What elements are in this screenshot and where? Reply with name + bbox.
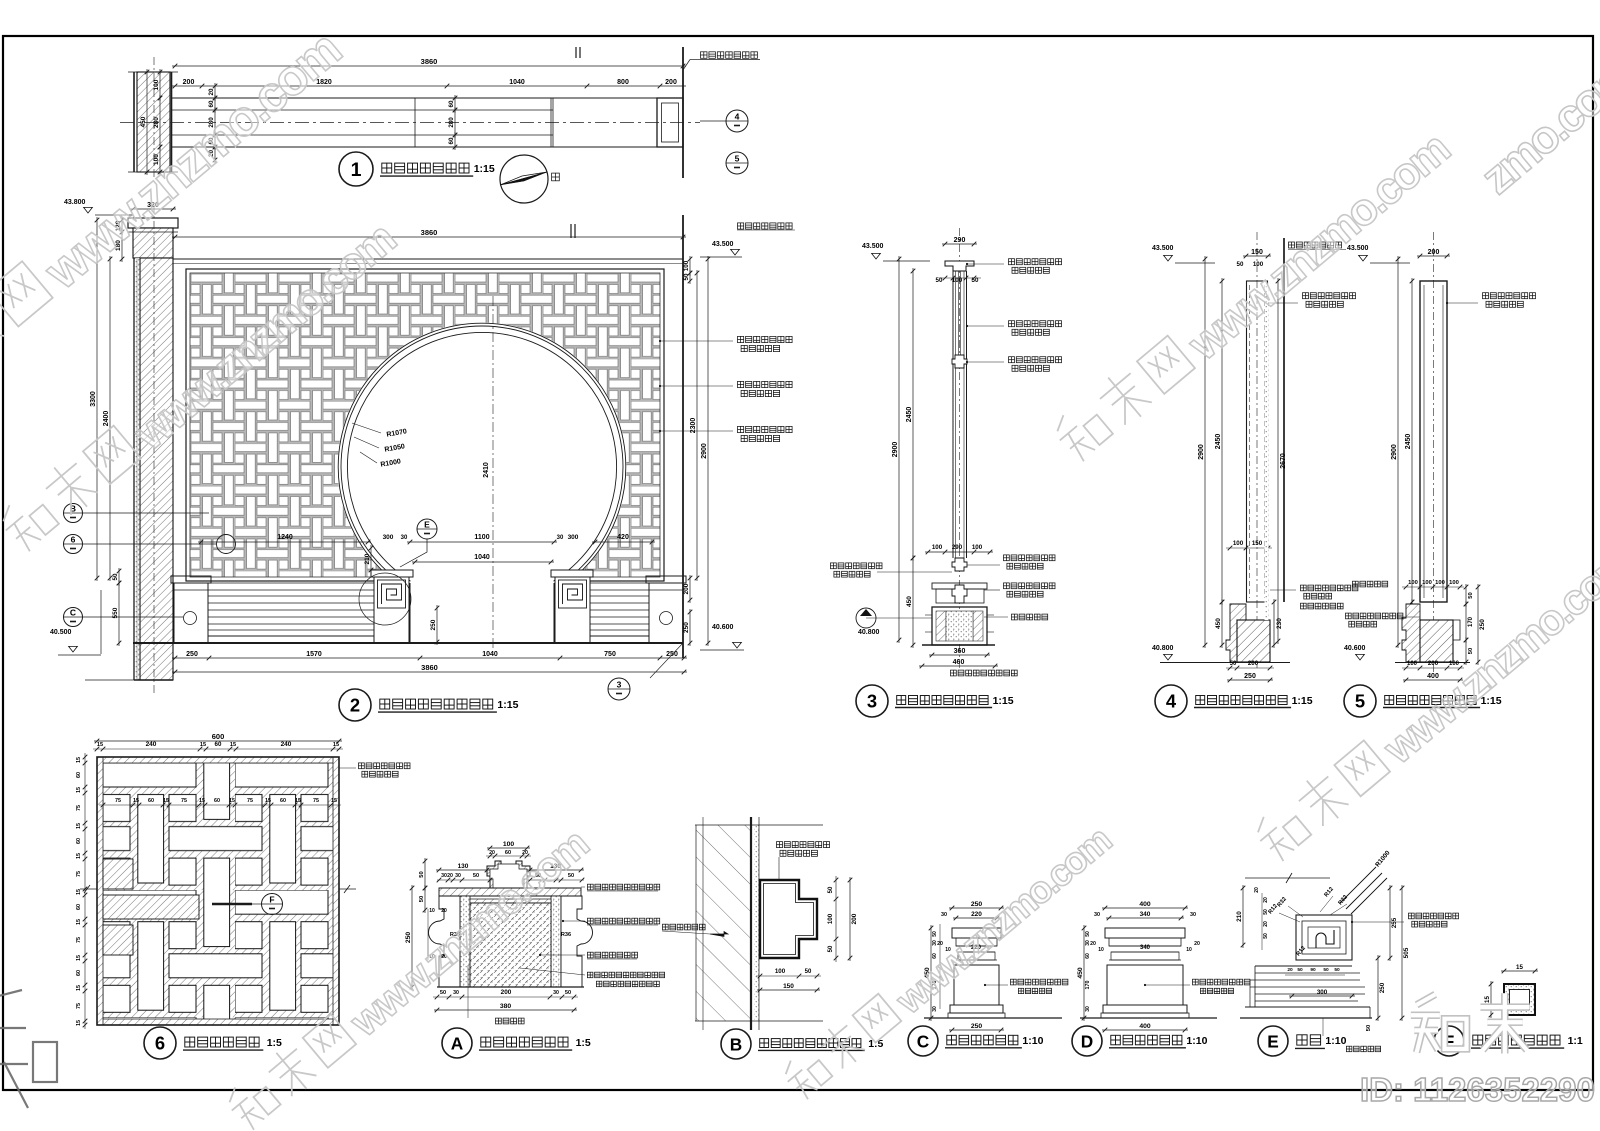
svg-text:20: 20 <box>441 908 447 914</box>
svg-text:3: 3 <box>617 680 622 690</box>
svg-text:240: 240 <box>281 741 292 748</box>
svg-text:20: 20 <box>1263 897 1269 903</box>
svg-text:50: 50 <box>828 886 834 893</box>
svg-text:60: 60 <box>448 137 455 144</box>
svg-text:F: F <box>269 895 274 905</box>
svg-text:750: 750 <box>604 651 616 658</box>
svg-text:170: 170 <box>1468 616 1474 627</box>
svg-text:200: 200 <box>501 989 512 996</box>
svg-text:20: 20 <box>447 873 453 879</box>
svg-text:E: E <box>424 520 430 530</box>
svg-text:300: 300 <box>568 534 579 541</box>
svg-text:60: 60 <box>505 850 511 856</box>
svg-text:100: 100 <box>503 841 515 848</box>
svg-text:3300: 3300 <box>90 391 97 407</box>
svg-text:15: 15 <box>76 955 82 961</box>
svg-text:450: 450 <box>140 116 147 127</box>
svg-text:250: 250 <box>430 619 437 630</box>
svg-text:30: 30 <box>553 990 559 996</box>
svg-text:A: A <box>451 1033 463 1053</box>
svg-text:50: 50 <box>805 969 812 975</box>
svg-text:100: 100 <box>153 79 160 90</box>
svg-text:450: 450 <box>906 596 913 607</box>
svg-text:15: 15 <box>76 757 82 763</box>
svg-text:50: 50 <box>1263 909 1269 915</box>
svg-text:15: 15 <box>76 985 82 991</box>
svg-text:75: 75 <box>76 805 82 811</box>
svg-text:100: 100 <box>1449 580 1459 586</box>
svg-text:1:10: 1:10 <box>1325 1035 1346 1047</box>
svg-text:1:15: 1:15 <box>497 699 518 711</box>
svg-text:20: 20 <box>1194 941 1200 947</box>
svg-text:100: 100 <box>972 544 983 551</box>
svg-text:B: B <box>730 1034 742 1054</box>
svg-text:6: 6 <box>155 1033 165 1054</box>
svg-text:250: 250 <box>1479 619 1486 630</box>
svg-text:15: 15 <box>163 798 169 804</box>
svg-text:2900: 2900 <box>892 442 899 458</box>
svg-text:2900: 2900 <box>1198 444 1205 460</box>
svg-text:C: C <box>917 1031 929 1051</box>
svg-text:290: 290 <box>952 544 963 551</box>
svg-text:50: 50 <box>112 573 119 580</box>
svg-text:250: 250 <box>1379 982 1386 993</box>
svg-text:3860: 3860 <box>421 663 438 672</box>
svg-text:50: 50 <box>419 896 425 902</box>
svg-text:30: 30 <box>453 990 459 996</box>
svg-text:15: 15 <box>76 1020 82 1026</box>
svg-text:15: 15 <box>76 889 82 895</box>
svg-text:150: 150 <box>783 983 794 990</box>
svg-text:2450: 2450 <box>1405 434 1412 450</box>
svg-text:60: 60 <box>148 798 154 804</box>
svg-text:40.500: 40.500 <box>50 629 72 636</box>
svg-text:15: 15 <box>76 787 82 793</box>
svg-text:15: 15 <box>199 798 205 804</box>
svg-text:250: 250 <box>971 1023 983 1030</box>
svg-text:30: 30 <box>441 873 447 879</box>
svg-text:250: 250 <box>186 651 198 658</box>
svg-text:2: 2 <box>350 695 360 716</box>
svg-text:75: 75 <box>76 871 82 877</box>
svg-text:2450: 2450 <box>906 407 913 423</box>
svg-text:R36: R36 <box>561 932 571 938</box>
svg-text:360: 360 <box>954 648 966 655</box>
svg-text:50: 50 <box>1366 1025 1372 1031</box>
svg-text:800: 800 <box>617 79 629 86</box>
svg-text:40.800: 40.800 <box>858 629 880 636</box>
svg-text:340: 340 <box>1140 945 1151 951</box>
svg-text:600: 600 <box>212 732 225 741</box>
svg-text:1:5: 1:5 <box>576 1037 591 1049</box>
svg-text:60: 60 <box>76 904 82 910</box>
svg-text:10: 10 <box>1098 947 1104 953</box>
svg-text:100: 100 <box>1435 580 1445 586</box>
svg-text:1570: 1570 <box>306 651 322 658</box>
svg-text:50: 50 <box>1230 661 1237 667</box>
svg-text:100: 100 <box>827 913 834 924</box>
svg-text:20: 20 <box>208 88 215 95</box>
svg-text:450: 450 <box>1077 967 1084 979</box>
svg-text:300: 300 <box>383 534 394 541</box>
svg-text:300: 300 <box>1317 989 1328 996</box>
svg-text:50: 50 <box>1334 967 1340 973</box>
svg-text:30: 30 <box>1085 1006 1091 1012</box>
svg-text:100: 100 <box>1233 540 1244 547</box>
svg-text:75: 75 <box>76 1003 82 1009</box>
svg-text:15: 15 <box>265 798 271 804</box>
svg-text:150: 150 <box>1251 249 1263 256</box>
svg-text:100: 100 <box>1422 580 1432 586</box>
svg-text:3: 3 <box>867 691 877 712</box>
svg-text:200: 200 <box>665 79 677 86</box>
svg-text:2400: 2400 <box>103 411 110 427</box>
svg-text:50: 50 <box>440 990 446 996</box>
svg-text:20: 20 <box>1254 887 1260 893</box>
svg-text:43.800: 43.800 <box>64 199 86 206</box>
svg-text:30: 30 <box>1190 912 1196 918</box>
svg-text:100: 100 <box>775 968 786 975</box>
svg-text:50: 50 <box>1323 967 1329 973</box>
svg-text:400: 400 <box>1139 1023 1151 1030</box>
svg-text:C: C <box>70 608 76 618</box>
svg-text:50: 50 <box>1297 967 1303 973</box>
svg-text:50: 50 <box>419 871 425 877</box>
svg-text:550: 550 <box>112 607 119 618</box>
svg-text:30: 30 <box>1094 912 1100 918</box>
svg-text:4: 4 <box>1166 691 1177 712</box>
svg-text:250: 250 <box>1244 673 1256 680</box>
svg-text:20: 20 <box>489 850 495 856</box>
svg-text:255: 255 <box>1391 917 1398 928</box>
svg-text:30: 30 <box>401 535 408 541</box>
svg-text:450: 450 <box>1215 618 1222 629</box>
svg-text:2410: 2410 <box>483 462 490 478</box>
svg-text:230: 230 <box>1276 618 1283 629</box>
svg-text:15: 15 <box>230 742 236 748</box>
svg-text:1:15: 1:15 <box>993 695 1014 707</box>
svg-text:1:5: 1:5 <box>267 1037 282 1049</box>
svg-text:15: 15 <box>76 919 82 925</box>
svg-text:15: 15 <box>333 742 339 748</box>
svg-text:50: 50 <box>828 945 834 952</box>
svg-text:1040: 1040 <box>509 79 525 86</box>
svg-text:250: 250 <box>683 622 690 633</box>
svg-text:30: 30 <box>455 873 461 879</box>
svg-text:30: 30 <box>1085 940 1091 946</box>
svg-text:50: 50 <box>683 273 690 280</box>
svg-text:1:10: 1:10 <box>1186 1035 1207 1047</box>
svg-text:100: 100 <box>932 544 943 551</box>
svg-text:15: 15 <box>97 742 103 748</box>
svg-text:43.500: 43.500 <box>712 241 734 248</box>
svg-text:75: 75 <box>115 798 121 804</box>
svg-text:1100: 1100 <box>474 534 489 541</box>
svg-text:60: 60 <box>448 100 455 107</box>
svg-text:40.600: 40.600 <box>712 624 734 631</box>
svg-text:1: 1 <box>351 159 362 181</box>
svg-text:1:5: 1:5 <box>868 1038 883 1050</box>
svg-text:3860: 3860 <box>421 57 438 66</box>
svg-text:60: 60 <box>76 838 82 844</box>
svg-text:43.500: 43.500 <box>862 243 884 250</box>
svg-text:50: 50 <box>473 873 479 879</box>
svg-text:75: 75 <box>247 798 253 804</box>
svg-text:1:10: 1:10 <box>1022 1035 1043 1047</box>
svg-text:D: D <box>1081 1031 1093 1051</box>
svg-text:15: 15 <box>331 798 337 804</box>
svg-text:60: 60 <box>280 798 286 804</box>
svg-text:ID: 1126352290: ID: 1126352290 <box>1360 1071 1595 1108</box>
svg-text:15: 15 <box>1484 996 1491 1003</box>
svg-text:60: 60 <box>76 970 82 976</box>
svg-text:50: 50 <box>1085 931 1091 937</box>
svg-text:100: 100 <box>683 260 690 271</box>
svg-text:75: 75 <box>313 798 319 804</box>
svg-text:1040: 1040 <box>482 651 498 658</box>
svg-text:400: 400 <box>1427 673 1439 680</box>
svg-text:50: 50 <box>1468 592 1474 598</box>
svg-text:40.600: 40.600 <box>1344 645 1366 652</box>
svg-text:6: 6 <box>71 535 76 545</box>
svg-text:20: 20 <box>1287 967 1293 973</box>
svg-text:1240: 1240 <box>277 534 293 541</box>
svg-text:210: 210 <box>364 553 371 564</box>
svg-text:280: 280 <box>153 117 160 128</box>
svg-text:2900: 2900 <box>701 443 708 459</box>
svg-text:2450: 2450 <box>1215 434 1222 450</box>
svg-text:20: 20 <box>1263 921 1269 927</box>
svg-text:200: 200 <box>683 583 690 594</box>
svg-text:90: 90 <box>1310 967 1316 973</box>
svg-text:60: 60 <box>215 741 222 748</box>
svg-text:420: 420 <box>617 534 629 541</box>
svg-text:60: 60 <box>1085 953 1091 959</box>
svg-text:200: 200 <box>851 913 858 924</box>
svg-text:4: 4 <box>735 112 740 122</box>
svg-text:340: 340 <box>1140 911 1151 918</box>
svg-text:100: 100 <box>1408 580 1418 586</box>
svg-text:170: 170 <box>1085 981 1091 990</box>
svg-text:1:15: 1:15 <box>1292 695 1313 707</box>
svg-text:460: 460 <box>953 659 965 666</box>
svg-text:15: 15 <box>76 823 82 829</box>
svg-text:50: 50 <box>932 931 938 937</box>
svg-text:200: 200 <box>1428 249 1440 256</box>
svg-text:250: 250 <box>971 901 983 908</box>
svg-text:210: 210 <box>1236 911 1243 922</box>
svg-text:130: 130 <box>458 863 469 870</box>
svg-text:30: 30 <box>932 940 938 946</box>
svg-text:75: 75 <box>76 937 82 943</box>
svg-text:30: 30 <box>941 912 947 918</box>
svg-text:50: 50 <box>1263 933 1269 939</box>
svg-text:30: 30 <box>557 535 564 541</box>
svg-text:1040: 1040 <box>474 554 490 561</box>
svg-text:5: 5 <box>1355 691 1365 712</box>
svg-text:15: 15 <box>200 742 206 748</box>
svg-text:280: 280 <box>448 117 455 128</box>
svg-text:15: 15 <box>229 798 235 804</box>
svg-text:400: 400 <box>1139 901 1151 908</box>
svg-text:10: 10 <box>1186 947 1192 953</box>
svg-text:60: 60 <box>214 798 220 804</box>
svg-text:100: 100 <box>1407 661 1418 667</box>
svg-text:75: 75 <box>181 798 187 804</box>
svg-text:10: 10 <box>429 908 435 914</box>
svg-text:5: 5 <box>735 154 740 164</box>
svg-text:50: 50 <box>565 990 571 996</box>
svg-text:2900: 2900 <box>1391 444 1398 460</box>
svg-text:2670: 2670 <box>1280 453 1287 469</box>
svg-text:1:15: 1:15 <box>474 163 495 175</box>
svg-text:290: 290 <box>954 237 966 244</box>
svg-text:15: 15 <box>295 798 301 804</box>
svg-text:15: 15 <box>133 798 139 804</box>
svg-text:40.800: 40.800 <box>1152 645 1174 652</box>
svg-text:200: 200 <box>183 79 195 86</box>
svg-text:150: 150 <box>1252 540 1263 547</box>
svg-text:15: 15 <box>1516 964 1523 971</box>
svg-text:1:1: 1:1 <box>1568 1035 1583 1047</box>
svg-text:3860: 3860 <box>421 228 438 237</box>
svg-text:200: 200 <box>1428 660 1439 667</box>
svg-text:15: 15 <box>76 853 82 859</box>
svg-text:240: 240 <box>146 741 157 748</box>
svg-text:505: 505 <box>1403 947 1410 958</box>
svg-text:43.500: 43.500 <box>1152 245 1174 252</box>
svg-text:200: 200 <box>1248 660 1259 667</box>
svg-text:380: 380 <box>500 1003 512 1010</box>
svg-text:E: E <box>1267 1031 1279 1051</box>
svg-text:60: 60 <box>76 772 82 778</box>
svg-text:50: 50 <box>1237 261 1244 268</box>
svg-text:250: 250 <box>405 932 412 944</box>
